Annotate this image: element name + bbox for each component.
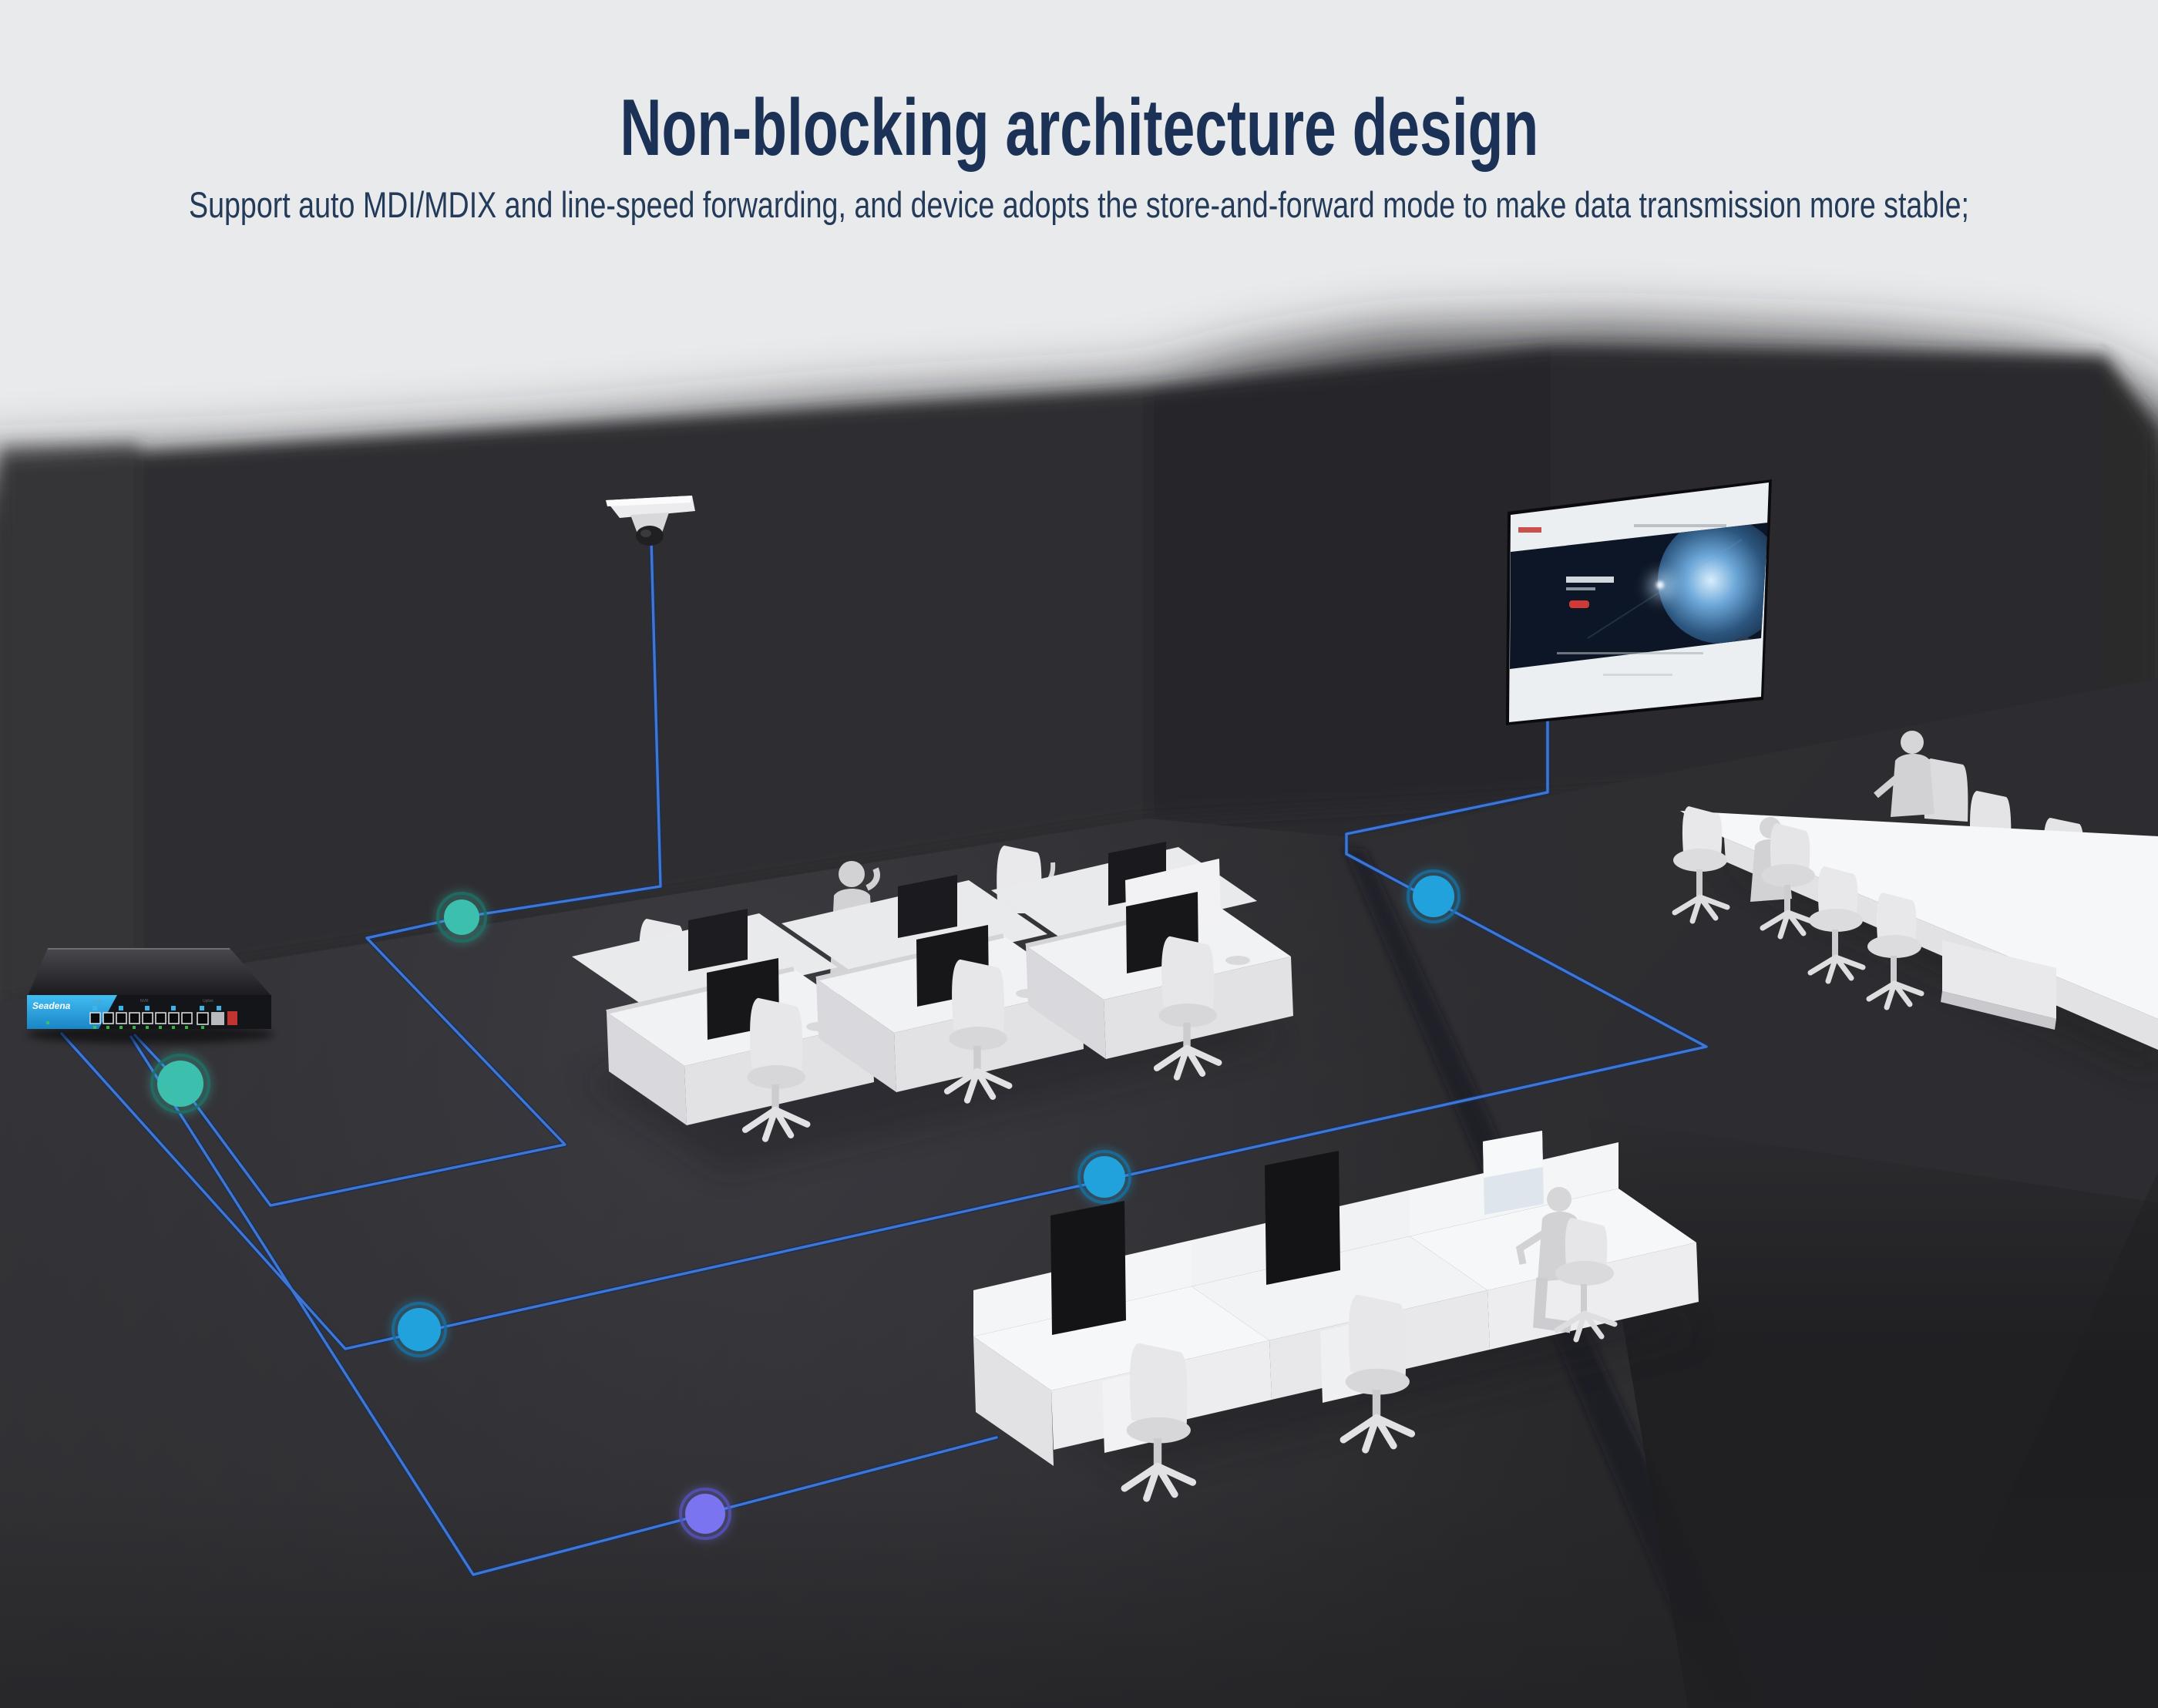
svg-text:PoE: PoE [94,1000,102,1004]
svg-text:Uplink: Uplink [203,999,213,1004]
svg-text:NVR: NVR [140,999,149,1004]
svg-text:Seadena: Seadena [32,1000,71,1011]
